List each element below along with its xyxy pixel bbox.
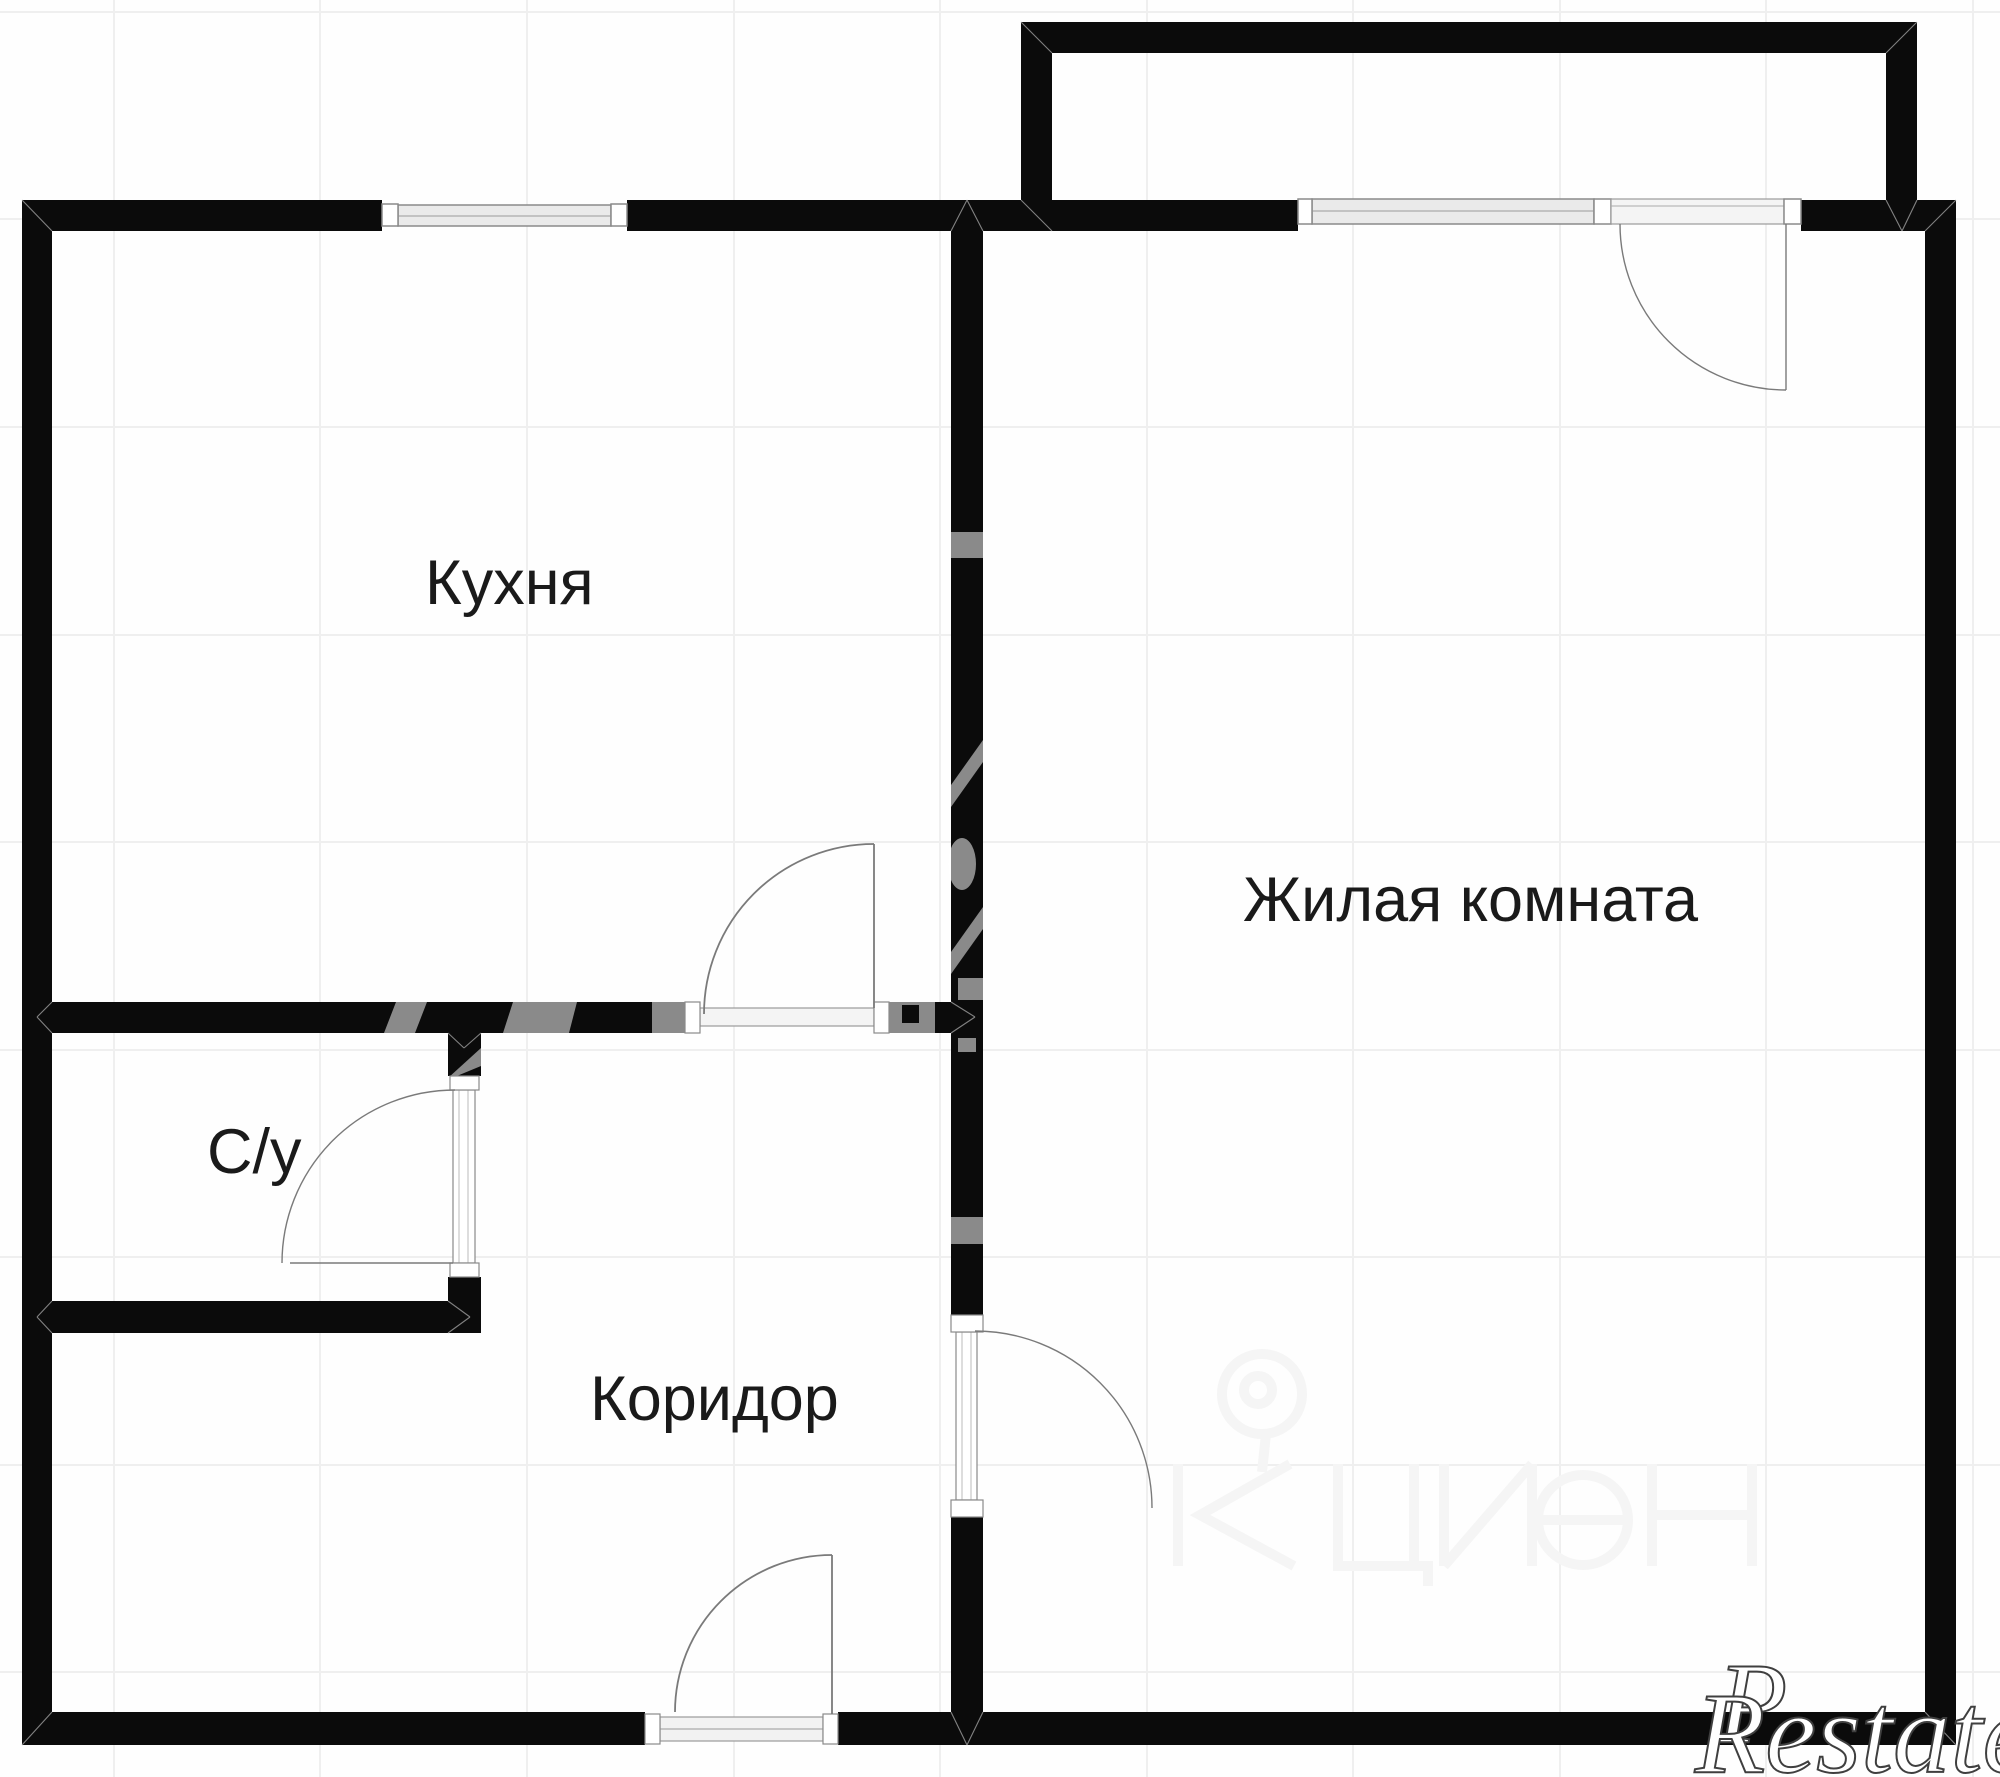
svg-text:Жилая комната: Жилая комната: [1243, 865, 1699, 935]
svg-text:Restate: Restate: [1694, 1670, 2000, 1777]
svg-text:Коридор: Коридор: [590, 1364, 839, 1434]
svg-text:Кухня: Кухня: [425, 548, 594, 618]
svg-text:С/у: С/у: [207, 1117, 302, 1187]
